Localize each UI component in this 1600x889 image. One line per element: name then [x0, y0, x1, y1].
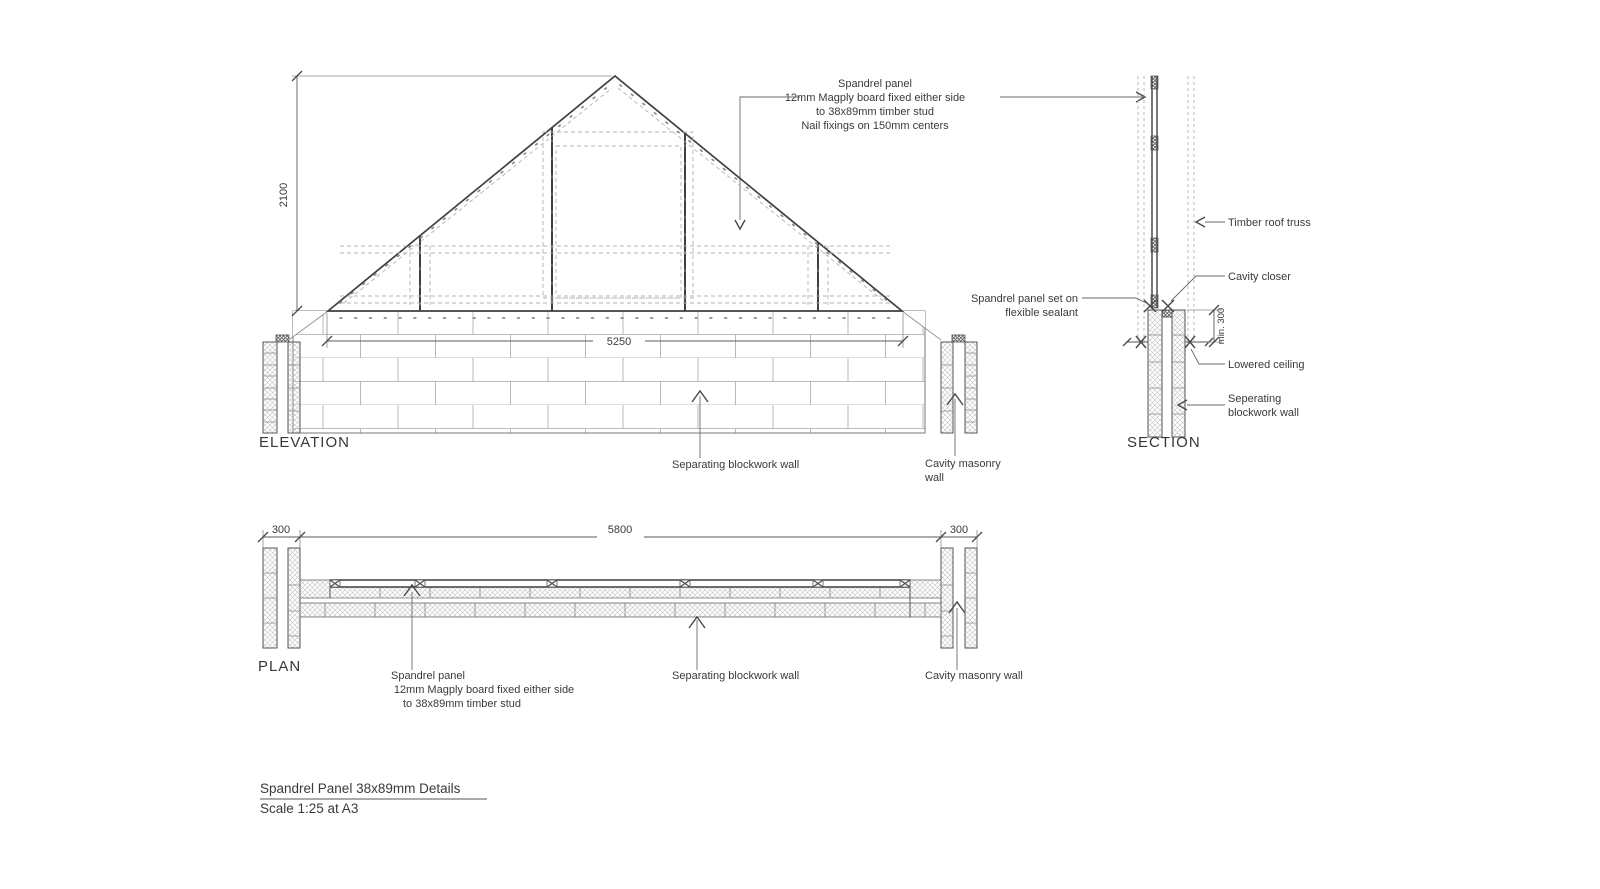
separating-wall-label-2: blockwork wall [1228, 407, 1299, 419]
section-title: SECTION [1127, 434, 1201, 451]
blockwork-band-lower [300, 603, 941, 617]
inner-leaf [941, 342, 953, 433]
separating-wall-label: Separating blockwork wall [672, 670, 799, 682]
top-note-line4: Nail fixings on 150mm centers [801, 120, 949, 132]
plan-title: PLAN [258, 658, 301, 675]
drawing-sheet: Spandrel panel 12mm Magply board fixed e… [0, 0, 1600, 889]
cavity-closer-label: Cavity closer [1228, 271, 1291, 283]
top-note-line3: to 38x89mm timber stud [816, 106, 934, 118]
dim-2100-label: 2100 [278, 183, 290, 207]
spandrel-panel-label-2: 12mm Magply board fixed either side [394, 684, 574, 696]
panel-noggin [1151, 238, 1158, 252]
dim-min-300-label: min. 300 [1216, 308, 1227, 344]
lowered-ceiling-label: Lowered ceiling [1228, 359, 1304, 371]
inner-leaf [288, 548, 300, 648]
panel-noggin [1151, 136, 1158, 150]
blockwork-leaf-right [1172, 310, 1185, 437]
inner-leaf [288, 342, 300, 433]
separating-wall-label: Separating blockwork wall [672, 459, 799, 471]
separating-wall-label-1: Seperating [1228, 393, 1281, 405]
separating-blockwork-wall [293, 311, 925, 433]
elevation-title: ELEVATION [259, 434, 350, 451]
drawing-title: Spandrel Panel 38x89mm Details [260, 781, 461, 796]
wall-stub-right [910, 580, 941, 598]
dim-300-left-label: 300 [272, 524, 290, 536]
spandrel-panel-label-3: to 38x89mm timber stud [403, 698, 521, 710]
cavity-wall-label-2: wall [924, 472, 944, 484]
cavity-wall-label-1: Cavity masonry [925, 458, 1001, 470]
cavity-closer [952, 335, 965, 342]
cavity-wall-label: Cavity masonry wall [925, 670, 1023, 682]
sealant-label-2: flexible sealant [1005, 307, 1078, 319]
spandrel-panel-label-1: Spandrel panel [391, 670, 465, 682]
wall-stub-left [300, 580, 330, 598]
dim-300-right-label: 300 [950, 524, 968, 536]
truss-label: Timber roof truss [1228, 217, 1311, 229]
outer-leaf [263, 342, 277, 433]
drawing-scale: Scale 1:25 at A3 [260, 801, 358, 816]
top-note-line2: 12mm Magply board fixed either side [785, 92, 965, 104]
outer-leaf [965, 342, 977, 433]
dim-5250-label: 5250 [607, 336, 631, 348]
sheet-background [0, 0, 1600, 889]
top-note-line1: Spandrel panel [838, 78, 912, 90]
panel-noggin [1151, 76, 1158, 89]
sealant-label-1: Spandrel panel set on [971, 293, 1078, 305]
inner-leaf [941, 548, 953, 648]
blockwork-leaf-left [1148, 310, 1162, 437]
dim-5800-label: 5800 [608, 524, 632, 536]
cavity-closer [276, 335, 289, 342]
